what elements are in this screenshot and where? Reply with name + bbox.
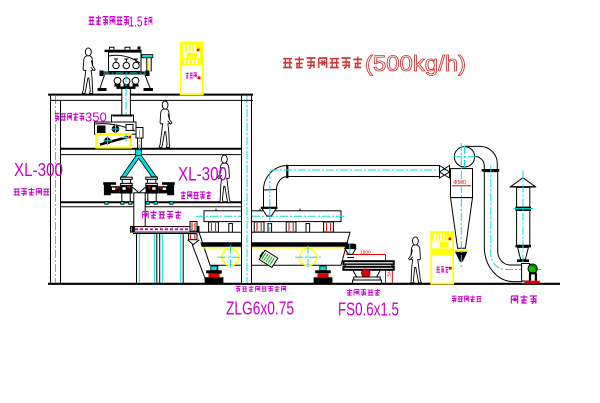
svg-text:1500: 1500 [360,249,371,255]
svg-text:XL-300: XL-300 [178,165,227,186]
svg-text:XL-300: XL-300 [14,160,63,180]
svg-text:Φ500: Φ500 [454,180,467,186]
svg-text:(500kg/h): (500kg/h) [365,51,466,76]
svg-text:FS0.6x1.5: FS0.6x1.5 [338,300,399,320]
svg-text:ZLG6x0.75: ZLG6x0.75 [226,299,294,319]
svg-text:1.5: 1.5 [129,14,143,31]
